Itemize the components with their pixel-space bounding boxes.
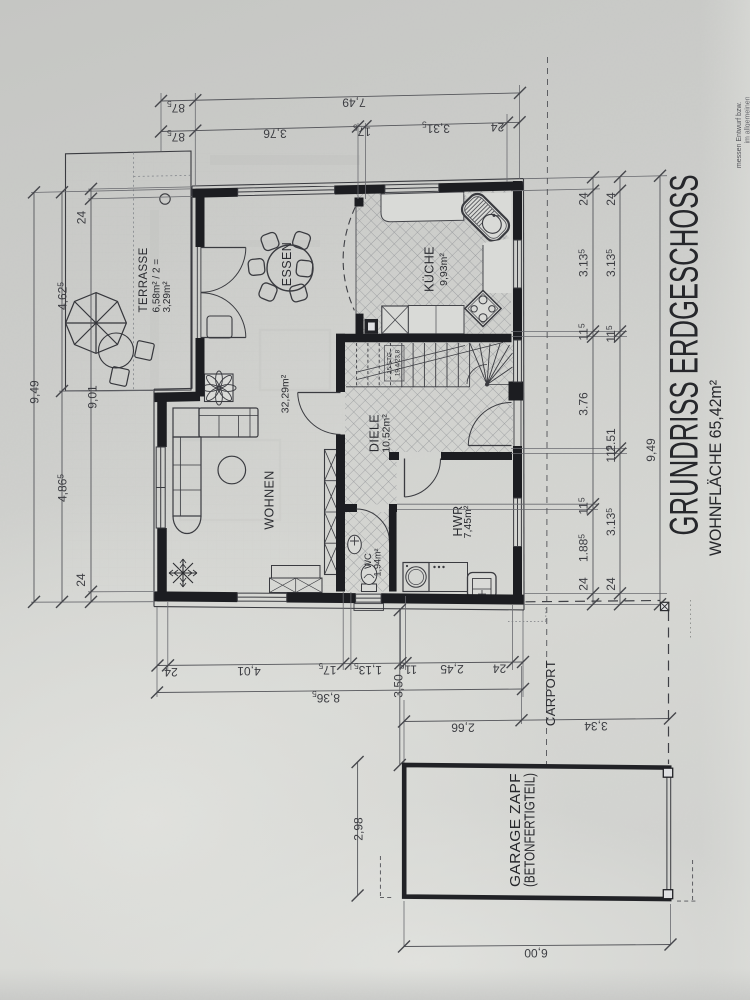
svg-text:24: 24 — [604, 577, 618, 591]
svg-text:24: 24 — [577, 577, 591, 591]
svg-text:3,50: 3,50 — [392, 674, 406, 698]
svg-text:32,29m²: 32,29m² — [280, 374, 292, 413]
svg-text:1,94m²: 1,94m² — [373, 548, 383, 576]
svg-text:15 STG: 15 STG — [387, 352, 394, 374]
svg-text:3,29m²: 3,29m² — [162, 281, 173, 313]
svg-text:WOHNFLÄCHE 65,42m²: WOHNFLÄCHE 65,42m² — [706, 380, 725, 556]
svg-text:9,49: 9,49 — [644, 438, 658, 462]
svg-text:24: 24 — [74, 573, 88, 587]
svg-text:24: 24 — [604, 192, 618, 206]
svg-text:24: 24 — [493, 662, 507, 676]
svg-text:9,93m²: 9,93m² — [438, 253, 450, 286]
svg-text:messen Entwurf bzw.: messen Entwurf bzw. — [736, 102, 743, 168]
svg-text:9,49: 9,49 — [28, 380, 42, 404]
svg-text:2,98: 2,98 — [352, 817, 366, 841]
svg-text:CARPORT: CARPORT — [543, 660, 558, 726]
svg-text:3.76: 3.76 — [577, 392, 591, 416]
svg-text:9,01: 9,01 — [86, 385, 100, 409]
svg-text:6,00: 6,00 — [524, 946, 548, 960]
svg-text:7,49: 7,49 — [342, 96, 366, 110]
svg-text:GRUNDRISS ERDGESCHOSS: GRUNDRISS ERDGESCHOSS — [663, 175, 707, 536]
svg-text:WOHNEN: WOHNEN — [263, 470, 277, 529]
svg-text:ESSEN: ESSEN — [280, 242, 294, 286]
svg-text:3,76: 3,76 — [263, 127, 287, 141]
svg-text:10,52m²: 10,52m² — [381, 414, 393, 453]
svg-text:3,34: 3,34 — [584, 719, 608, 733]
svg-text:24: 24 — [75, 211, 89, 225]
svg-text:im allgemeinen: im allgemeinen — [745, 96, 750, 143]
svg-text:4,01: 4,01 — [237, 664, 261, 678]
svg-text:2,45: 2,45 — [440, 662, 464, 676]
svg-text:24: 24 — [577, 192, 591, 206]
svg-text:24: 24 — [164, 665, 178, 679]
svg-text:2,66: 2,66 — [451, 721, 475, 735]
svg-text:6,58m² / 2 =: 6,58m² / 2 = — [152, 259, 163, 313]
svg-text:24: 24 — [491, 120, 505, 134]
svg-text:KÜCHE: KÜCHE — [423, 246, 437, 292]
svg-text:(BETONFERTIGTEIL): (BETONFERTIGTEIL) — [523, 773, 539, 887]
svg-text:19,4/23,8: 19,4/23,8 — [395, 349, 402, 376]
svg-text:DIELE: DIELE — [368, 414, 382, 452]
svg-text:7,45m²: 7,45m² — [462, 505, 474, 538]
svg-text:TERRASSE: TERRASSE — [138, 247, 150, 312]
